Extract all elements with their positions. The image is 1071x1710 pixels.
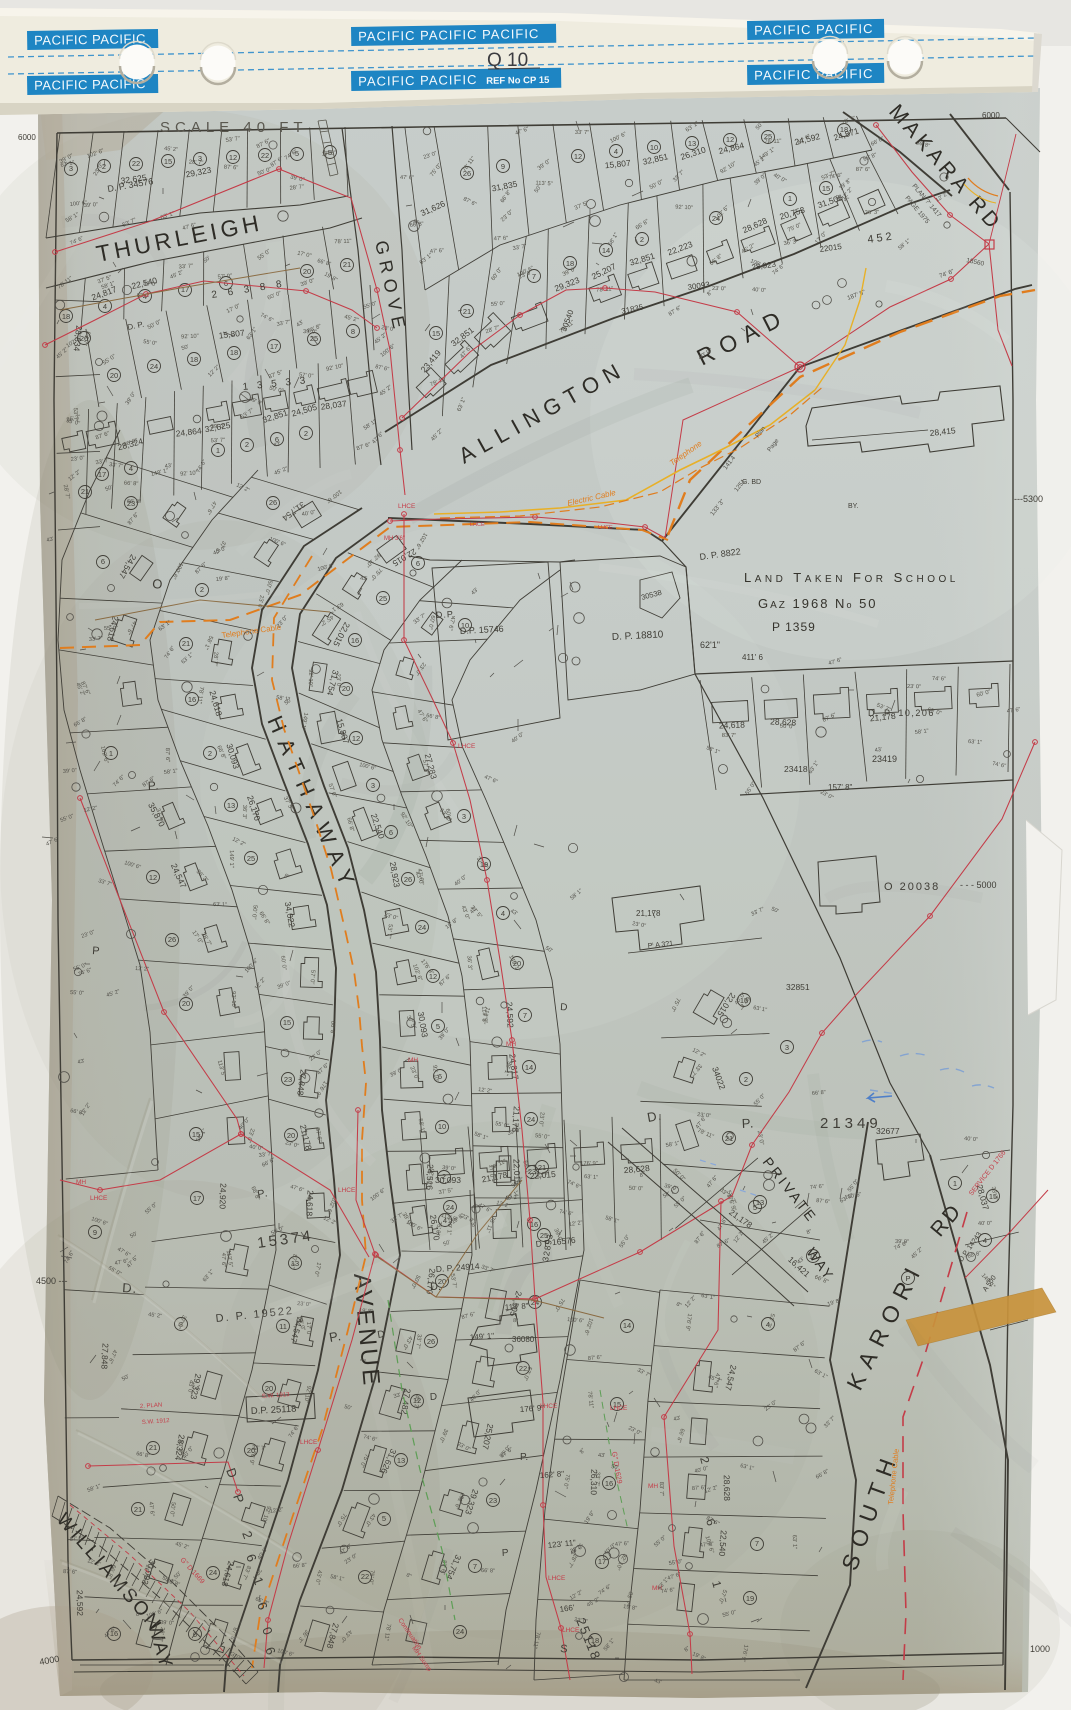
svg-text:16: 16 bbox=[530, 1220, 538, 1229]
svg-text:32677: 32677 bbox=[876, 1126, 900, 1136]
svg-text:33' 7": 33' 7" bbox=[252, 1445, 266, 1452]
svg-text:22,540: 22,540 bbox=[717, 1530, 729, 1557]
svg-text:---5300: ---5300 bbox=[1014, 494, 1043, 504]
svg-text:P.: P. bbox=[328, 1328, 343, 1345]
svg-text:23: 23 bbox=[489, 1496, 497, 1505]
svg-text:2: 2 bbox=[245, 440, 249, 449]
svg-text:MH: MH bbox=[76, 1179, 86, 1186]
svg-text:26: 26 bbox=[269, 498, 277, 507]
svg-text:23' 0": 23' 0" bbox=[712, 286, 726, 292]
svg-text:24: 24 bbox=[418, 923, 426, 932]
svg-text:66' 8": 66' 8" bbox=[124, 481, 139, 488]
svg-text:18: 18 bbox=[190, 355, 198, 364]
svg-text:24: 24 bbox=[150, 362, 158, 371]
svg-text:SCALE 40 FT: SCALE 40 FT bbox=[160, 119, 308, 136]
svg-text:36080: 36080 bbox=[512, 1335, 535, 1344]
svg-text:9: 9 bbox=[501, 162, 505, 171]
svg-text:28' 7": 28' 7" bbox=[189, 160, 204, 167]
svg-text:63' 1": 63' 1" bbox=[213, 902, 227, 908]
svg-text:24,592: 24,592 bbox=[75, 1590, 85, 1616]
svg-text:P.: P. bbox=[520, 1452, 528, 1463]
svg-text:MH: MH bbox=[506, 1041, 516, 1048]
svg-text:45' 2": 45' 2" bbox=[412, 1395, 419, 1410]
svg-text:50': 50' bbox=[611, 1464, 619, 1471]
svg-text:21: 21 bbox=[182, 639, 190, 648]
svg-text:P.: P. bbox=[256, 1187, 269, 1201]
svg-text:2: 2 bbox=[200, 585, 204, 594]
svg-text:26: 26 bbox=[404, 875, 412, 884]
svg-text:87' 6": 87' 6" bbox=[164, 748, 170, 763]
svg-text:36' 3": 36' 3" bbox=[241, 805, 247, 820]
svg-text:15: 15 bbox=[432, 329, 440, 338]
svg-text:6: 6 bbox=[416, 559, 420, 568]
svg-text:63' 1": 63' 1" bbox=[968, 739, 982, 746]
svg-text:39' 0": 39' 0" bbox=[160, 1620, 174, 1627]
svg-text:10: 10 bbox=[438, 1122, 446, 1131]
svg-text:S: S bbox=[560, 1643, 569, 1656]
svg-text:4500 ---: 4500 --- bbox=[36, 1276, 68, 1286]
svg-text:17: 17 bbox=[193, 1194, 201, 1203]
svg-text:24: 24 bbox=[446, 1203, 454, 1212]
svg-text:4: 4 bbox=[501, 909, 505, 918]
svg-text:24: 24 bbox=[527, 1115, 535, 1124]
svg-text:62'1": 62'1" bbox=[700, 640, 720, 650]
svg-text:83' 7": 83' 7" bbox=[658, 1482, 664, 1497]
svg-text:4: 4 bbox=[983, 1236, 987, 1245]
svg-text:D.: D. bbox=[646, 1108, 663, 1125]
svg-text:23: 23 bbox=[284, 1075, 292, 1084]
svg-text:21,178: 21,178 bbox=[636, 909, 661, 918]
svg-text:PACIFIC PACIFIC PACIFIC: PACIFIC PACIFIC PACIFIC bbox=[358, 26, 539, 44]
svg-text:PACIFIC PACIFIC: PACIFIC PACIFIC bbox=[358, 72, 477, 89]
svg-text:15: 15 bbox=[809, 1252, 817, 1261]
svg-text:16: 16 bbox=[605, 1479, 613, 1488]
svg-text:D: D bbox=[560, 1002, 569, 1014]
svg-text:P: P bbox=[905, 1274, 910, 1283]
svg-text:D: D bbox=[430, 1392, 439, 1403]
svg-text:21: 21 bbox=[149, 1443, 157, 1452]
svg-text:55' 0": 55' 0" bbox=[491, 301, 505, 308]
svg-text:20: 20 bbox=[110, 371, 118, 380]
svg-text:78' 11": 78' 11" bbox=[764, 139, 782, 146]
svg-text:24,920: 24,920 bbox=[218, 1183, 229, 1210]
svg-text:LHCE: LHCE bbox=[458, 743, 476, 750]
svg-text:66' 8": 66' 8" bbox=[329, 1021, 336, 1036]
svg-text:14: 14 bbox=[623, 1321, 631, 1330]
svg-text:47' 6": 47' 6" bbox=[430, 248, 444, 255]
svg-text:REF No CP 15: REF No CP 15 bbox=[486, 75, 550, 87]
svg-text:20: 20 bbox=[265, 1384, 273, 1393]
svg-text:4: 4 bbox=[103, 302, 107, 311]
svg-text:1: 1 bbox=[109, 749, 113, 758]
svg-text:LHCE: LHCE bbox=[598, 525, 613, 531]
svg-text:63' 1": 63' 1" bbox=[584, 1174, 598, 1181]
svg-text:7: 7 bbox=[523, 1011, 527, 1020]
svg-text:13: 13 bbox=[227, 801, 235, 810]
svg-text:87' 6": 87' 6" bbox=[224, 165, 239, 172]
svg-text:- - - 5000: - - - 5000 bbox=[960, 880, 997, 890]
svg-text:6000: 6000 bbox=[18, 133, 36, 142]
svg-text:7: 7 bbox=[755, 1539, 759, 1548]
svg-text:14: 14 bbox=[525, 1063, 533, 1072]
svg-text:15: 15 bbox=[164, 157, 172, 166]
svg-text:50' 0": 50' 0" bbox=[629, 1186, 644, 1193]
svg-text:43': 43' bbox=[360, 576, 367, 582]
svg-text:9: 9 bbox=[93, 1228, 97, 1237]
svg-text:2: 2 bbox=[744, 1075, 748, 1084]
svg-text:55' 0": 55' 0" bbox=[104, 626, 118, 632]
svg-text:43': 43' bbox=[598, 1453, 605, 1459]
svg-text:83' 7": 83' 7" bbox=[722, 733, 737, 739]
svg-text:39' 0": 39' 0" bbox=[84, 202, 98, 209]
svg-text:P 1359: P 1359 bbox=[772, 620, 816, 634]
svg-text:20: 20 bbox=[287, 1131, 295, 1140]
svg-text:16: 16 bbox=[188, 695, 196, 704]
svg-text:28' 7": 28' 7" bbox=[212, 652, 219, 667]
svg-text:PACIFIC PACIFIC: PACIFIC PACIFIC bbox=[34, 31, 146, 48]
svg-text:176' 9": 176' 9" bbox=[580, 1161, 598, 1167]
svg-text:23418: 23418 bbox=[784, 764, 808, 774]
svg-text:17' 0": 17' 0" bbox=[305, 1322, 311, 1337]
svg-text:28,628: 28,628 bbox=[722, 1475, 732, 1501]
svg-text:43': 43' bbox=[874, 747, 882, 754]
svg-text:12: 12 bbox=[229, 153, 237, 162]
svg-text:74' 6": 74' 6" bbox=[932, 676, 946, 682]
svg-text:13: 13 bbox=[397, 1456, 405, 1465]
svg-text:3: 3 bbox=[785, 1043, 789, 1052]
svg-text:24: 24 bbox=[209, 1568, 217, 1577]
svg-text:66' 8": 66' 8" bbox=[127, 499, 141, 505]
svg-text:18: 18 bbox=[62, 312, 70, 321]
svg-text:LHCE: LHCE bbox=[610, 1405, 628, 1412]
svg-text:2: 2 bbox=[304, 429, 308, 438]
svg-text:LHCE: LHCE bbox=[300, 1439, 318, 1446]
svg-text:43': 43' bbox=[164, 463, 172, 470]
svg-text:149' 1": 149' 1" bbox=[228, 850, 234, 868]
svg-text:LHCE: LHCE bbox=[470, 522, 485, 528]
svg-text:23' 0": 23' 0" bbox=[907, 684, 921, 690]
svg-text:15: 15 bbox=[822, 184, 830, 193]
svg-text:21: 21 bbox=[463, 307, 471, 316]
svg-text:40' 0": 40' 0" bbox=[752, 287, 766, 294]
svg-text:1000: 1000 bbox=[1030, 1644, 1050, 1654]
svg-text:22: 22 bbox=[261, 151, 269, 160]
svg-text:32851: 32851 bbox=[786, 982, 810, 992]
svg-text:4: 4 bbox=[614, 147, 618, 156]
svg-text:162' 8": 162' 8" bbox=[540, 1469, 565, 1480]
svg-text:PACIFIC PACIFIC: PACIFIC PACIFIC bbox=[754, 21, 873, 38]
svg-text:33' 7": 33' 7" bbox=[575, 130, 590, 136]
svg-text:39' 0": 39' 0" bbox=[211, 424, 226, 430]
svg-text:92' 10": 92' 10" bbox=[181, 334, 199, 341]
svg-text:8": 8" bbox=[513, 1318, 519, 1324]
svg-text:O: O bbox=[152, 576, 164, 592]
svg-text:LHCE: LHCE bbox=[338, 1187, 356, 1194]
svg-text:17: 17 bbox=[598, 1557, 606, 1566]
svg-text:21: 21 bbox=[134, 1505, 142, 1514]
svg-text:36' 3": 36' 3" bbox=[465, 955, 472, 970]
svg-text:87' 6": 87' 6" bbox=[63, 1569, 77, 1576]
svg-text:6000: 6000 bbox=[982, 111, 1000, 120]
svg-text:10: 10 bbox=[650, 143, 658, 152]
svg-text:30,093: 30,093 bbox=[435, 1175, 461, 1185]
svg-text:14: 14 bbox=[602, 246, 610, 255]
svg-text:19: 19 bbox=[746, 1594, 754, 1603]
svg-text:5: 5 bbox=[753, 1203, 757, 1212]
svg-text:7: 7 bbox=[473, 1562, 477, 1571]
svg-text:87' 6": 87' 6" bbox=[856, 167, 871, 173]
svg-text:1: 1 bbox=[788, 194, 792, 203]
svg-text:53' 7": 53' 7" bbox=[211, 438, 226, 445]
svg-text:36' 3": 36' 3" bbox=[865, 210, 880, 217]
svg-text:1: 1 bbox=[953, 1179, 957, 1188]
svg-text:55' 0": 55' 0" bbox=[70, 990, 84, 997]
svg-text:MH 3'6": MH 3'6" bbox=[384, 536, 405, 542]
svg-text:2: 2 bbox=[208, 749, 212, 758]
svg-text:50' 0": 50' 0" bbox=[780, 724, 795, 731]
svg-text:78' 11": 78' 11" bbox=[334, 239, 351, 246]
svg-text:1: 1 bbox=[216, 446, 220, 455]
svg-text:411' 6: 411' 6 bbox=[742, 653, 764, 662]
svg-text:23' 0": 23' 0" bbox=[335, 674, 342, 689]
svg-text:17: 17 bbox=[270, 342, 278, 351]
svg-text:92' 10": 92' 10" bbox=[675, 205, 693, 212]
svg-text:87' 6": 87' 6" bbox=[588, 1355, 602, 1362]
svg-text:63' 1": 63' 1" bbox=[791, 1535, 798, 1550]
svg-text:25: 25 bbox=[379, 594, 387, 603]
svg-text:47' 6": 47' 6" bbox=[494, 236, 509, 243]
svg-text:12' 2": 12' 2" bbox=[135, 966, 149, 973]
svg-text:55' 0": 55' 0" bbox=[143, 281, 157, 288]
svg-text:47' 6": 47' 6" bbox=[400, 175, 414, 181]
svg-text:26: 26 bbox=[427, 1337, 435, 1346]
svg-text:24,618: 24,618 bbox=[719, 720, 746, 731]
svg-text:12: 12 bbox=[352, 734, 360, 743]
svg-text:MH: MH bbox=[648, 1483, 658, 1490]
svg-text:19' 8": 19' 8" bbox=[359, 1308, 373, 1315]
svg-text:26: 26 bbox=[168, 935, 176, 944]
svg-text:P: P bbox=[92, 945, 101, 958]
svg-text:21: 21 bbox=[343, 260, 351, 269]
svg-text:157' 8": 157' 8" bbox=[828, 783, 853, 792]
svg-text:92' 10": 92' 10" bbox=[230, 991, 236, 1009]
svg-text:LHCE: LHCE bbox=[548, 1575, 566, 1582]
svg-text:D.P.: D.P. bbox=[436, 609, 457, 620]
svg-text:18: 18 bbox=[230, 348, 238, 357]
svg-text:12: 12 bbox=[149, 873, 157, 882]
svg-text:43' 0": 43' 0" bbox=[177, 1440, 184, 1455]
svg-text:22: 22 bbox=[132, 159, 140, 168]
svg-text:5: 5 bbox=[382, 1514, 386, 1523]
svg-text:66' 8": 66' 8" bbox=[481, 1568, 495, 1574]
svg-text:16: 16 bbox=[351, 636, 359, 645]
svg-text:40' 0": 40' 0" bbox=[978, 1221, 992, 1227]
svg-text:8": 8" bbox=[136, 1612, 141, 1618]
svg-text:12: 12 bbox=[574, 152, 582, 161]
svg-text:2: 2 bbox=[640, 235, 644, 244]
svg-text:10: 10 bbox=[461, 621, 469, 630]
svg-text:39' 0": 39' 0" bbox=[303, 329, 317, 335]
svg-text:40' 0": 40' 0" bbox=[964, 1136, 978, 1143]
svg-text:47' 6": 47' 6" bbox=[220, 1253, 226, 1267]
svg-text:24: 24 bbox=[456, 1627, 464, 1636]
svg-text:74' 6": 74' 6" bbox=[810, 1184, 824, 1191]
svg-text:45' 2": 45' 2" bbox=[164, 146, 178, 153]
svg-text:PACIFIC PACIFIC: PACIFIC PACIFIC bbox=[34, 76, 146, 93]
svg-text:BY.: BY. bbox=[848, 503, 858, 510]
svg-text:25: 25 bbox=[247, 854, 255, 863]
svg-text:57' 0": 57' 0" bbox=[309, 970, 316, 985]
svg-text:23419: 23419 bbox=[872, 754, 897, 764]
svg-text:P: P bbox=[502, 1548, 510, 1559]
svg-text:5: 5 bbox=[436, 1022, 440, 1031]
svg-text:8: 8 bbox=[351, 327, 355, 336]
svg-text:24,618: 24,618 bbox=[304, 1190, 315, 1217]
svg-text:20: 20 bbox=[303, 267, 311, 276]
svg-text:6: 6 bbox=[101, 557, 105, 566]
svg-text:D.: D. bbox=[430, 1281, 441, 1293]
svg-text:33' 7": 33' 7" bbox=[594, 1472, 601, 1487]
svg-text:39' 0": 39' 0" bbox=[63, 768, 77, 775]
svg-text:LHCE: LHCE bbox=[90, 1195, 108, 1202]
